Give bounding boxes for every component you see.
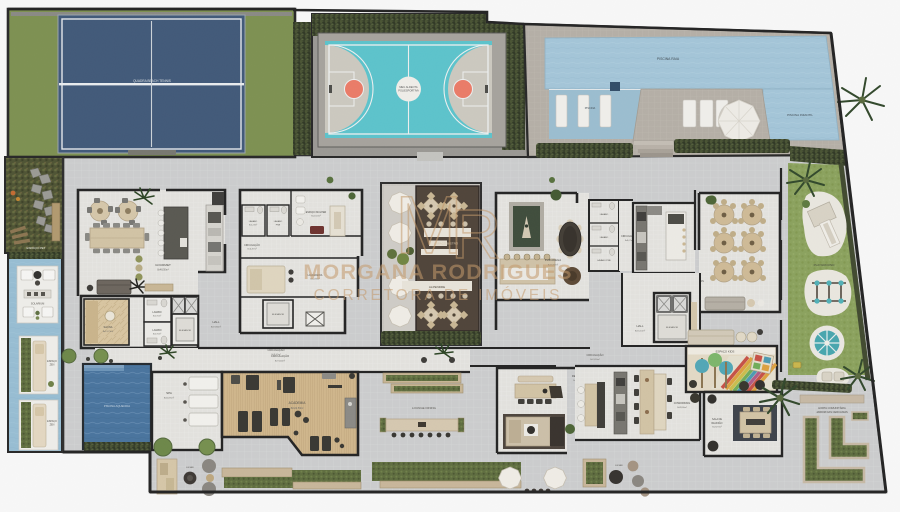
svg-text:MORGANA RODRIGUES: MORGANA RODRIGUES <box>303 260 572 284</box>
svg-text:CORRETORA DE IMÓVEIS: CORRETORA DE IMÓVEIS <box>314 287 563 304</box>
